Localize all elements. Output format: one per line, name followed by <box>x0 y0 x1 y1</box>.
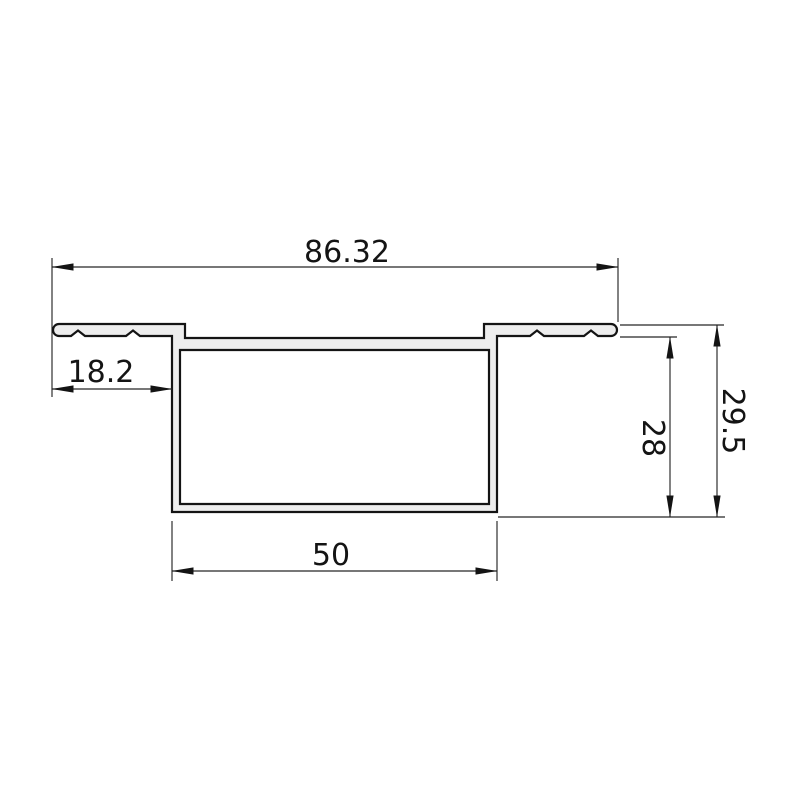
extrusion-profile-outline <box>53 324 617 512</box>
dimension-flange-width: 18.2 <box>52 355 172 390</box>
extension-lines <box>52 258 725 581</box>
dimension-inner-height: 28 <box>635 337 670 517</box>
dim-label-flange-width: 18.2 <box>68 355 135 390</box>
dimension-overall-width: 86.32 <box>52 235 618 270</box>
dim-label-overall-height: 29.5 <box>715 388 750 455</box>
dimension-overall-height: 29.5 <box>715 325 750 517</box>
dim-label-overall-width: 86.32 <box>304 235 390 270</box>
technical-drawing-canvas: 86.32 18.2 50 28 29.5 <box>0 0 800 800</box>
dimension-bottom-width: 50 <box>172 538 497 573</box>
dim-label-bottom-width: 50 <box>312 538 350 573</box>
profile-cross-section-drawing: 86.32 18.2 50 28 29.5 <box>0 0 800 800</box>
dim-label-inner-height: 28 <box>635 419 670 457</box>
